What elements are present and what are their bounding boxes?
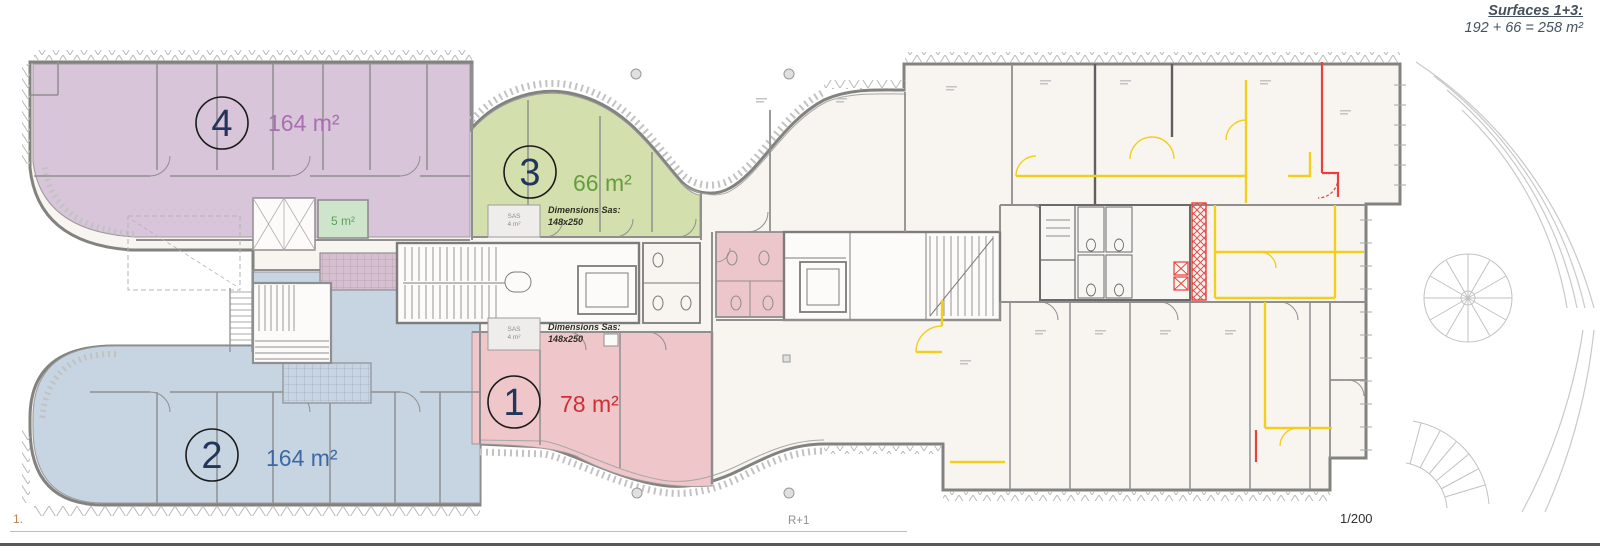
zone-1-area-label: 78 m² xyxy=(560,391,619,417)
zone-4-area-label: 164 m² xyxy=(268,110,340,136)
zone-4-number: 4 xyxy=(211,103,232,145)
sanitary-core-right-wing xyxy=(1040,205,1190,300)
wc-block-pink xyxy=(716,232,784,317)
zone-4-area xyxy=(33,64,470,237)
sas-note-top-title: Dimensions Sas: xyxy=(548,205,621,215)
zone-3-number: 3 xyxy=(519,152,540,194)
footer-underline xyxy=(10,531,907,532)
sas-room-area-bottom: 4 m² xyxy=(508,334,522,341)
spiral-staircase xyxy=(1424,254,1512,342)
sas-note-top-dims: 148x250 xyxy=(548,217,583,227)
level-label: R+1 xyxy=(788,515,809,527)
floor-plan-sheet: Surfaces 1+3: 192 + 66 = 258 m² xyxy=(0,0,1600,552)
sas-note-bottom-title: Dimensions Sas: xyxy=(548,322,621,332)
sas-note-bottom-dims: 148x250 xyxy=(548,334,583,344)
zone-1-number: 1 xyxy=(503,382,524,424)
zone-2-area-label: 164 m² xyxy=(266,445,338,471)
sheet-bottom-rule xyxy=(0,543,1600,546)
sas-room-label-bottom: SAS xyxy=(507,326,521,333)
sas-room-area-top: 4 m² xyxy=(508,221,522,228)
sheet-number: 1. xyxy=(13,512,23,526)
small-room-area-label: 5 m² xyxy=(331,214,355,228)
stair-core-right xyxy=(784,232,1000,320)
site-curved-ramp xyxy=(1416,62,1594,512)
scale-label: 1/200 xyxy=(1340,511,1373,526)
fan-steps xyxy=(1406,421,1489,508)
red-shaft xyxy=(1192,203,1206,300)
zone-2-number: 2 xyxy=(201,435,222,477)
zone-3-area-label: 66 m² xyxy=(573,170,632,196)
floor-plan-canvas: 4 164 m² 3 66 m² 2 164 m² 1 78 m² 5 m² D… xyxy=(0,0,1600,552)
sas-room-label-top: SAS xyxy=(507,213,521,220)
